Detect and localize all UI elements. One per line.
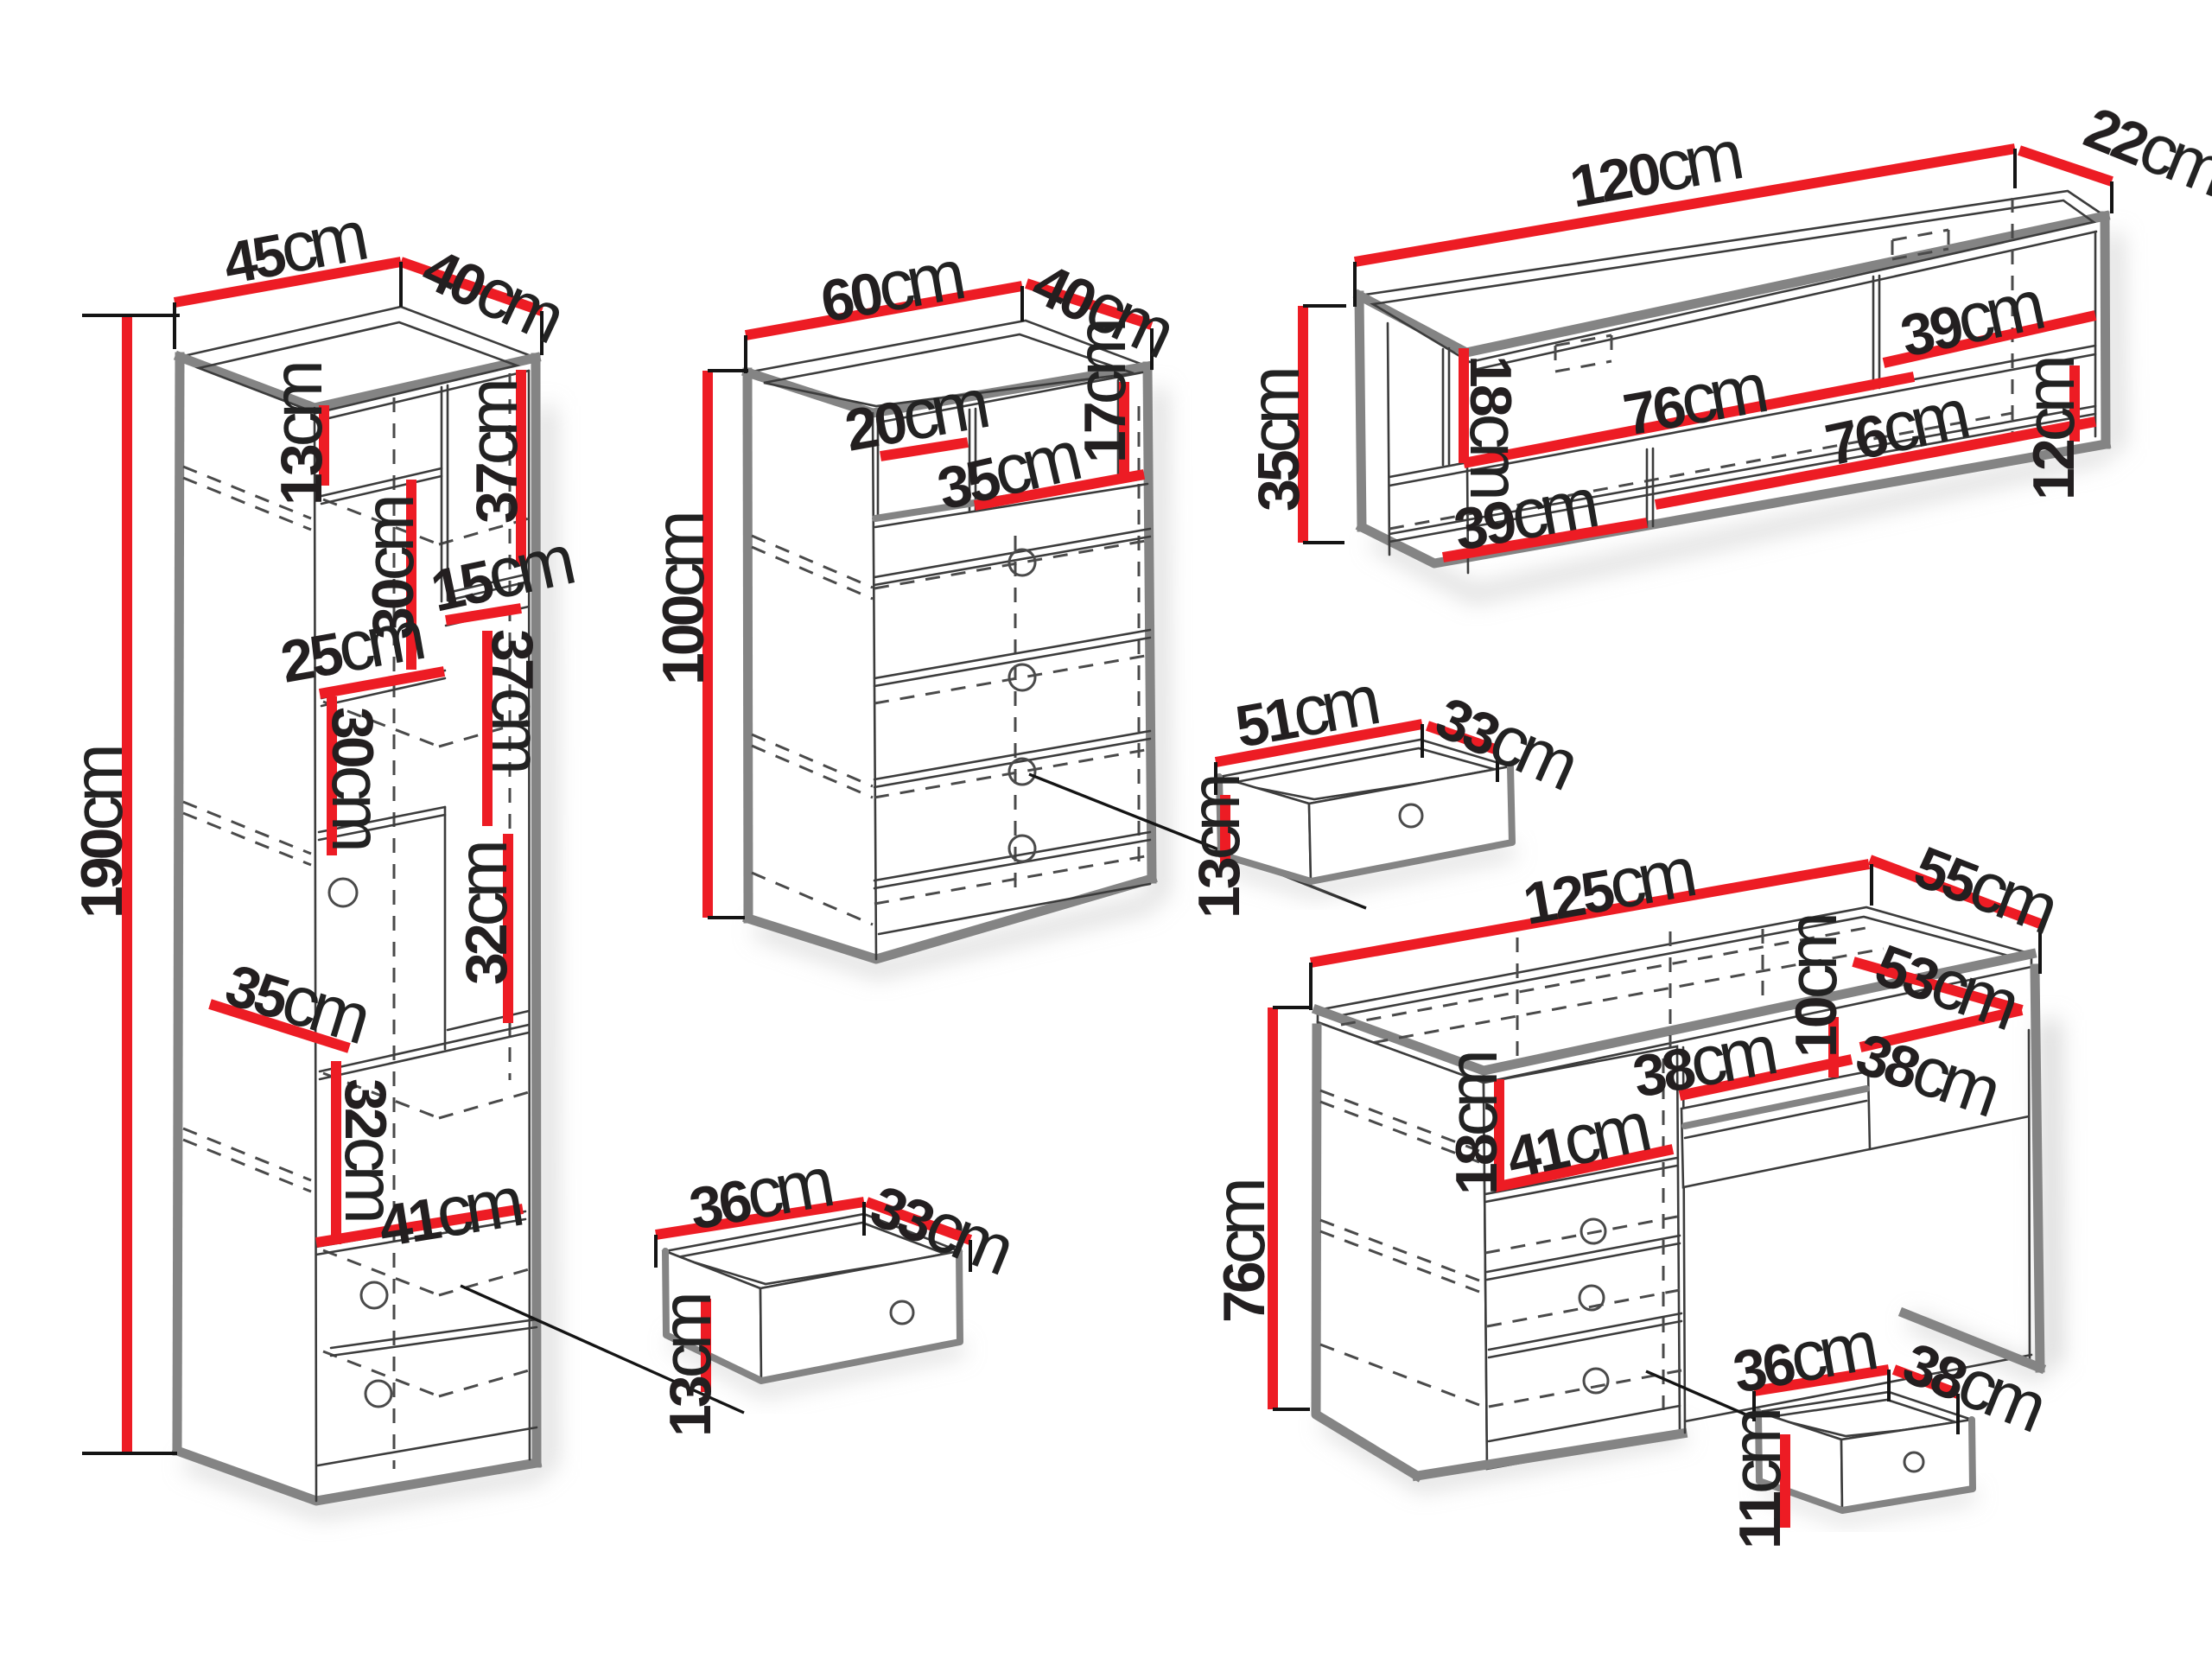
svg-text:35cm: 35cm [1236,370,1314,512]
svg-text:17cm: 17cm [1062,321,1141,463]
svg-text:37cm: 37cm [477,629,556,771]
svg-text:18cm: 18cm [1433,1053,1512,1195]
svg-text:190cm: 190cm [59,748,137,918]
svg-text:32cm: 32cm [443,843,522,985]
svg-text:76cm: 76cm [1201,1181,1280,1323]
svg-text:13cm: 13cm [647,1295,726,1437]
svg-text:100cm: 100cm [640,515,719,685]
svg-text:12cm: 12cm [2011,359,2089,500]
svg-text:37cm: 37cm [454,382,532,524]
svg-text:13cm: 13cm [258,364,337,505]
svg-text:30cm: 30cm [317,707,396,849]
svg-text:13cm: 13cm [1176,777,1255,918]
svg-text:10cm: 10cm [1773,916,1852,1058]
svg-text:11cm: 11cm [1717,1411,1796,1549]
